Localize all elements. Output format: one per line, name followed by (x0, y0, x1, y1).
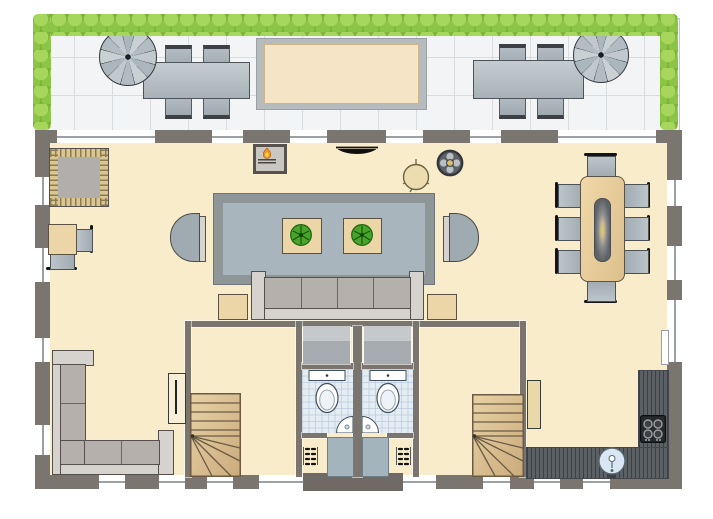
tall-cabinet (527, 380, 541, 429)
desk-chair (76, 229, 93, 252)
wall-tv (335, 145, 379, 155)
window (386, 130, 423, 143)
floor-plan (0, 0, 713, 519)
wall (436, 475, 483, 489)
wall (667, 362, 682, 489)
dining-chair (623, 250, 649, 274)
window (290, 130, 327, 143)
window (207, 475, 233, 489)
sofa-seat (264, 277, 411, 310)
fireplace-grate (258, 159, 276, 165)
plant-icon (289, 223, 313, 247)
wall (667, 280, 682, 300)
window (667, 246, 682, 280)
bathroom-wall (387, 433, 413, 438)
toilet-and-sink (362, 369, 413, 433)
corner-sofa-armrest (158, 430, 174, 475)
wall (35, 362, 50, 425)
sofa-armrest (409, 271, 424, 320)
window (35, 338, 50, 362)
corner-sofa-seat (60, 364, 86, 442)
outdoor-chair (165, 96, 192, 119)
wall (35, 475, 99, 489)
wall (501, 130, 558, 143)
radiator (168, 373, 186, 424)
window (667, 300, 682, 362)
wall (125, 475, 159, 489)
hedge-top (35, 14, 678, 36)
wall (35, 130, 50, 177)
dining-chair (587, 156, 616, 178)
winder-staircase-left (190, 393, 241, 477)
radiator-fin (175, 380, 177, 414)
dining-chair (587, 280, 616, 302)
toilet-and-sink (302, 369, 353, 433)
stool (398, 158, 434, 194)
bathroom-right (362, 369, 413, 433)
area-rug (213, 193, 435, 285)
hedge-left (33, 14, 51, 130)
wall (155, 130, 212, 143)
window (667, 180, 682, 206)
dining-chair (623, 217, 649, 241)
bathroom-wall (302, 433, 327, 438)
fringed-rug (49, 148, 109, 207)
round-heater (436, 149, 464, 177)
outdoor-table-left (143, 62, 250, 99)
outdoor-chair (203, 96, 230, 119)
winder-staircase-right (472, 394, 524, 477)
entry-steps-icon (302, 445, 319, 467)
entry-steps-icon (395, 445, 412, 467)
bathroom-left (302, 369, 353, 433)
window (558, 130, 656, 143)
desk (48, 224, 77, 255)
side-table (427, 294, 457, 320)
table-lamp (594, 198, 611, 262)
wall (243, 130, 290, 143)
window (212, 130, 243, 143)
window (35, 425, 50, 455)
bathroom-closet (303, 327, 350, 364)
bathroom-door (362, 437, 389, 477)
wall (667, 130, 682, 180)
wall (327, 130, 386, 143)
window (470, 130, 501, 143)
window (35, 177, 50, 205)
side-chair (50, 253, 75, 270)
corner-sofa-seat (84, 440, 160, 465)
corner-sofa-seat (60, 440, 86, 465)
outdoor-table-right (473, 60, 584, 99)
outdoor-chair (499, 96, 526, 119)
center-wall (353, 326, 362, 477)
wall (185, 475, 207, 489)
window (259, 475, 305, 489)
sofa-backrest (264, 308, 411, 320)
side-table (218, 294, 248, 320)
window (99, 475, 125, 489)
bathroom-door (327, 437, 354, 477)
cooktop (640, 415, 666, 443)
kitchen-sink (597, 446, 627, 480)
bathroom-wall (413, 321, 419, 477)
fireplace (253, 144, 287, 174)
wall (233, 475, 259, 489)
dining-chair (623, 184, 649, 208)
window (159, 475, 185, 489)
hedge-right (660, 14, 678, 130)
wall (667, 206, 682, 246)
window (483, 475, 510, 489)
wall (35, 282, 50, 338)
window (402, 475, 436, 489)
kitchen-windowsill (661, 330, 669, 365)
spiral-staircase-left (99, 28, 157, 86)
wall (423, 130, 470, 143)
outdoor-chair (537, 96, 564, 119)
window (57, 130, 155, 143)
plant-icon (350, 223, 374, 247)
terrace-skylight-pane (264, 44, 419, 104)
bathroom-closet (364, 327, 411, 364)
